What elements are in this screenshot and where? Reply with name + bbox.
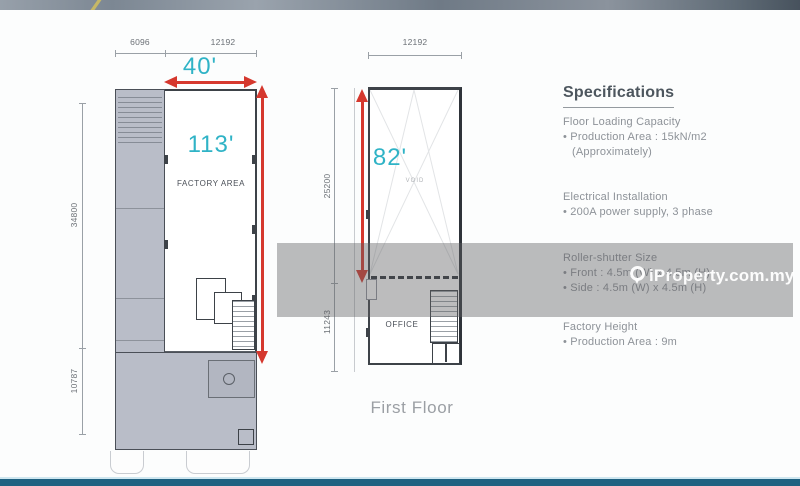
- parking-bay: [186, 451, 250, 474]
- spec-heading: Factory Height: [563, 320, 763, 335]
- dim-tick: [165, 50, 166, 57]
- footer-teal-bar: [0, 479, 800, 486]
- office-label: OFFICE: [370, 320, 434, 329]
- strip-divider: [116, 298, 164, 299]
- location-pin-icon: [630, 266, 645, 281]
- specifications-title: Specifications: [563, 84, 674, 108]
- dim-tick: [256, 50, 257, 57]
- length-arrow-line: [261, 97, 264, 352]
- dim-tick: [461, 52, 462, 59]
- extension-line: [354, 88, 355, 372]
- dim-label-10787: 10787: [69, 351, 79, 411]
- width-dimension-label: 40': [168, 53, 232, 81]
- interior-stairs-hatch: [232, 300, 255, 350]
- length-arrow-bottom-head: [256, 351, 268, 364]
- watermark-text: iProperty.com.my: [649, 266, 795, 286]
- width-arrow-line: [176, 81, 245, 84]
- service-box: [238, 429, 254, 445]
- top-photo-strip: [0, 0, 800, 10]
- spec-item: • Production Area : 15kN/m2: [563, 130, 763, 145]
- dim-tick: [79, 103, 86, 104]
- first-floor-length-label: 82': [362, 144, 418, 172]
- first-floor-small-room: [432, 343, 460, 364]
- column-marker: [366, 328, 370, 337]
- spec-section-factory-height: Factory Height • Production Area : 9m: [563, 320, 763, 350]
- stairs-hatch-top: [118, 93, 162, 143]
- spec-item: (Approximately): [563, 145, 763, 160]
- dim-line-side-left-plan: [82, 103, 83, 435]
- column-marker: [164, 240, 168, 249]
- watermark: iProperty.com.my: [630, 266, 795, 286]
- strip-divider: [116, 340, 164, 341]
- dim-line-side-first-floor: [334, 88, 335, 372]
- dim-label-25200: 25200: [322, 156, 332, 216]
- dim-tick: [331, 88, 338, 89]
- spec-heading: Floor Loading Capacity: [563, 115, 763, 130]
- parking-bay: [110, 451, 144, 474]
- dim-tick: [79, 434, 86, 435]
- dim-tick: [331, 371, 338, 372]
- column-marker: [252, 225, 256, 234]
- rear-apron: [115, 352, 257, 450]
- strip-divider: [116, 208, 164, 209]
- dim-label-6096: 6096: [115, 37, 165, 47]
- length-dimension-label: 113': [166, 131, 256, 159]
- dim-line-top-first-floor: [368, 55, 462, 56]
- spec-item: • Production Area : 9m: [563, 335, 763, 350]
- spec-item: • 200A power supply, 3 phase: [563, 205, 763, 220]
- photo-strip-highlight: [90, 0, 101, 10]
- spec-section-electrical: Electrical Installation • 200A power sup…: [563, 190, 763, 220]
- dim-label-34800: 34800: [69, 185, 79, 245]
- factory-area-label: FACTORY AREA: [165, 179, 257, 188]
- floor-plan-page: 6096 12192 34800 10787 113' FACTORY AREA: [0, 0, 800, 486]
- dim-label-12192-first-floor: 12192: [385, 37, 445, 47]
- spec-section-floor-loading: Floor Loading Capacity • Production Area…: [563, 115, 763, 160]
- first-floor-caption: First Floor: [352, 398, 472, 418]
- spec-heading: Electrical Installation: [563, 190, 763, 205]
- dim-tick: [115, 50, 116, 57]
- dim-label-12192-left-plan: 12192: [190, 37, 256, 47]
- void-label: VOID: [400, 178, 430, 184]
- wc-symbol: [223, 373, 235, 385]
- column-marker: [366, 210, 370, 219]
- toilet-block: [208, 360, 255, 398]
- dim-tick: [79, 348, 86, 349]
- room-divider: [445, 344, 447, 362]
- dim-tick: [368, 52, 369, 59]
- specifications-title-wrap: Specifications: [563, 84, 674, 108]
